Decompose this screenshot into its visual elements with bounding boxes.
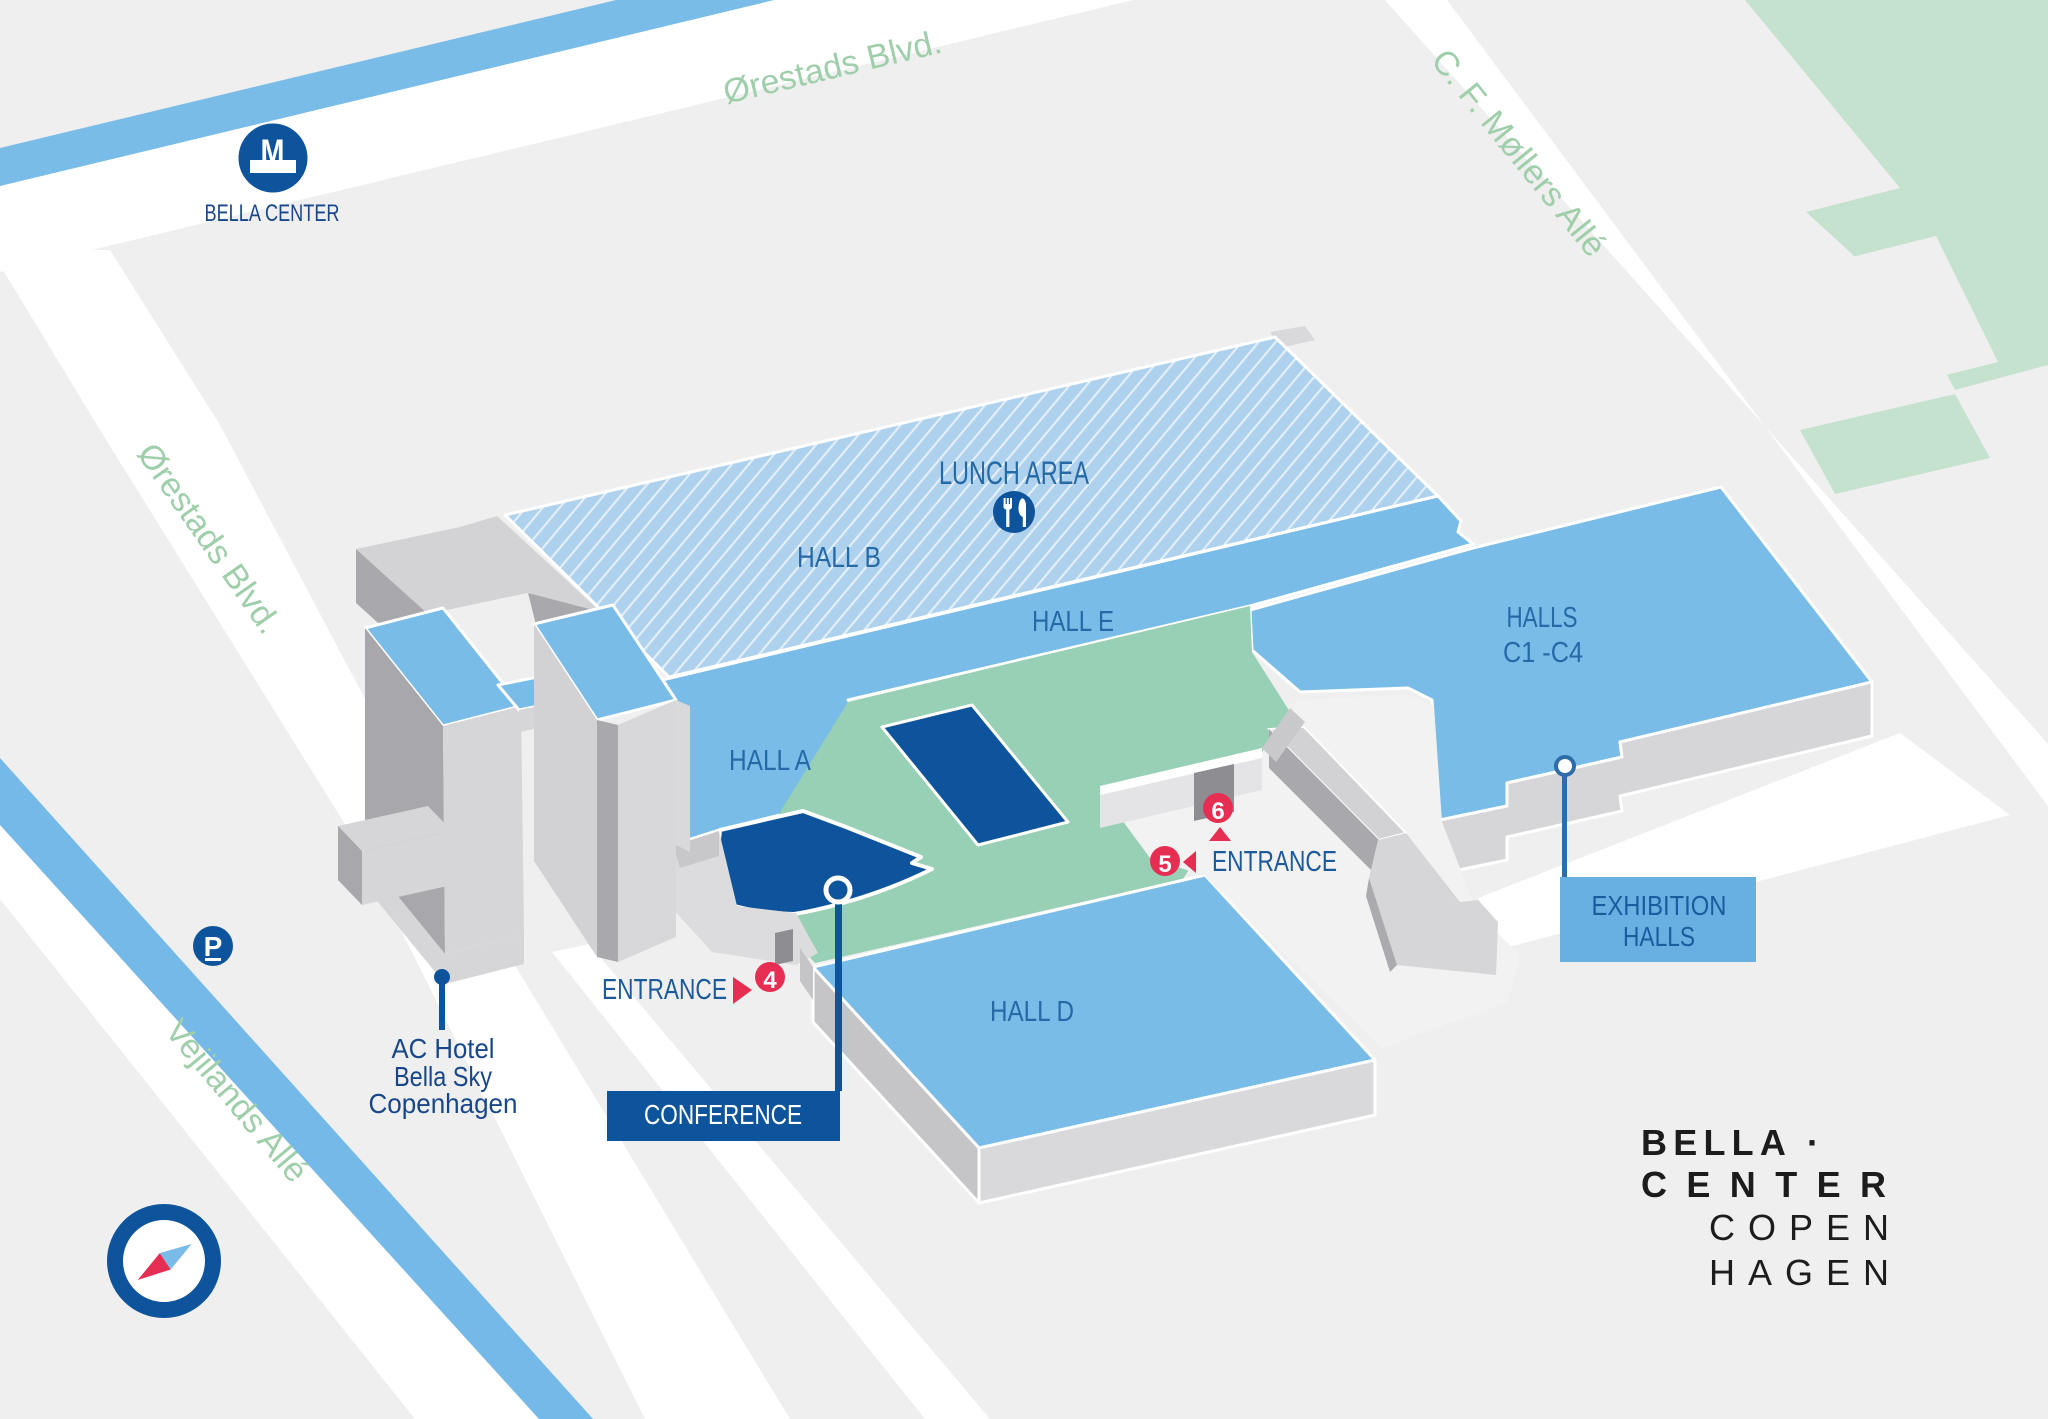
svg-text:HALLS: HALLS <box>1507 602 1578 634</box>
svg-text:HALL A: HALL A <box>729 745 812 777</box>
svg-text:EXHIBITION: EXHIBITION <box>1592 890 1727 921</box>
svg-text:ENTRANCE: ENTRANCE <box>1212 846 1337 878</box>
svg-text:P: P <box>204 931 223 962</box>
svg-text:ENTRANCE: ENTRANCE <box>602 974 727 1006</box>
svg-text:CONFERENCE: CONFERENCE <box>644 1099 802 1130</box>
svg-text:HALLS: HALLS <box>1623 921 1695 952</box>
svg-text:BELLA CENTER: BELLA CENTER <box>205 200 340 227</box>
svg-text:C1 -C4: C1 -C4 <box>1503 637 1583 669</box>
svg-text:HALL B: HALL B <box>797 542 881 574</box>
svg-text:4: 4 <box>763 967 777 994</box>
svg-text:Copenhagen: Copenhagen <box>369 1088 518 1119</box>
svg-text:LUNCH AREA: LUNCH AREA <box>939 455 1089 491</box>
svg-text:AC Hotel: AC Hotel <box>392 1033 495 1064</box>
svg-text:5: 5 <box>1158 851 1171 878</box>
svg-text:HALL D: HALL D <box>990 996 1074 1028</box>
svg-text:HALL E: HALL E <box>1032 606 1114 638</box>
svg-text:6: 6 <box>1211 798 1224 825</box>
